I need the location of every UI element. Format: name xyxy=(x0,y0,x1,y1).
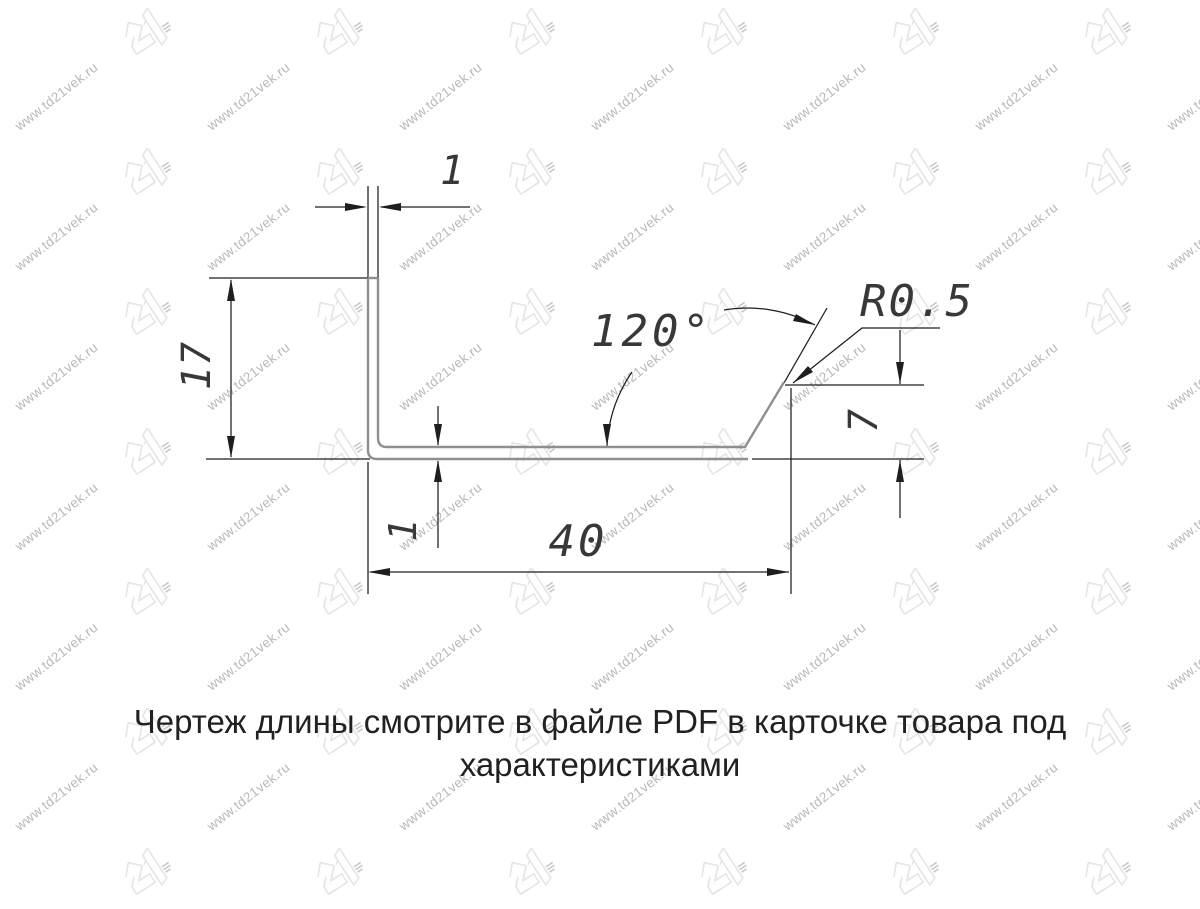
dim-label-bend-angle: 120° xyxy=(591,306,713,357)
arrowhead xyxy=(896,460,904,482)
profile-outline xyxy=(368,278,784,459)
arrowhead xyxy=(368,568,390,576)
arrowhead xyxy=(793,314,815,325)
lip-height-dim-line xyxy=(752,330,924,518)
arrowhead xyxy=(227,436,235,458)
caption: Чертеж длины смотрите в файле PDF в карт… xyxy=(0,700,1200,786)
top-thickness-dim-line xyxy=(315,186,470,278)
arrowhead xyxy=(434,424,442,446)
arrowhead xyxy=(345,203,367,211)
caption-line-1: Чертеж длины смотрите в файле PDF в карт… xyxy=(0,700,1200,743)
dim-label-bend-radius: R0.5 xyxy=(860,276,974,327)
arrowhead xyxy=(793,366,813,383)
dim-label-lip-height: 7 xyxy=(841,409,887,433)
angle-arc xyxy=(607,372,632,446)
radius-leader-line xyxy=(793,328,940,383)
dimension-labels: 1 17 120° R0.5 7 40 1 xyxy=(174,148,974,567)
arrowhead xyxy=(434,460,442,482)
arrowhead xyxy=(896,362,904,384)
dim-label-wall-thickness: 1 xyxy=(440,148,464,194)
arrowhead xyxy=(767,568,789,576)
height-dim-line xyxy=(206,278,375,459)
arrowhead xyxy=(227,279,235,301)
profile-inner-edge xyxy=(378,278,784,447)
dim-label-width: 40 xyxy=(549,516,608,567)
dim-label-base-thickness: 1 xyxy=(381,519,425,542)
caption-line-2: характеристиками xyxy=(0,743,1200,786)
arrowhead xyxy=(603,424,611,446)
arrowhead xyxy=(379,203,401,211)
dim-label-height: 17 xyxy=(174,342,220,390)
